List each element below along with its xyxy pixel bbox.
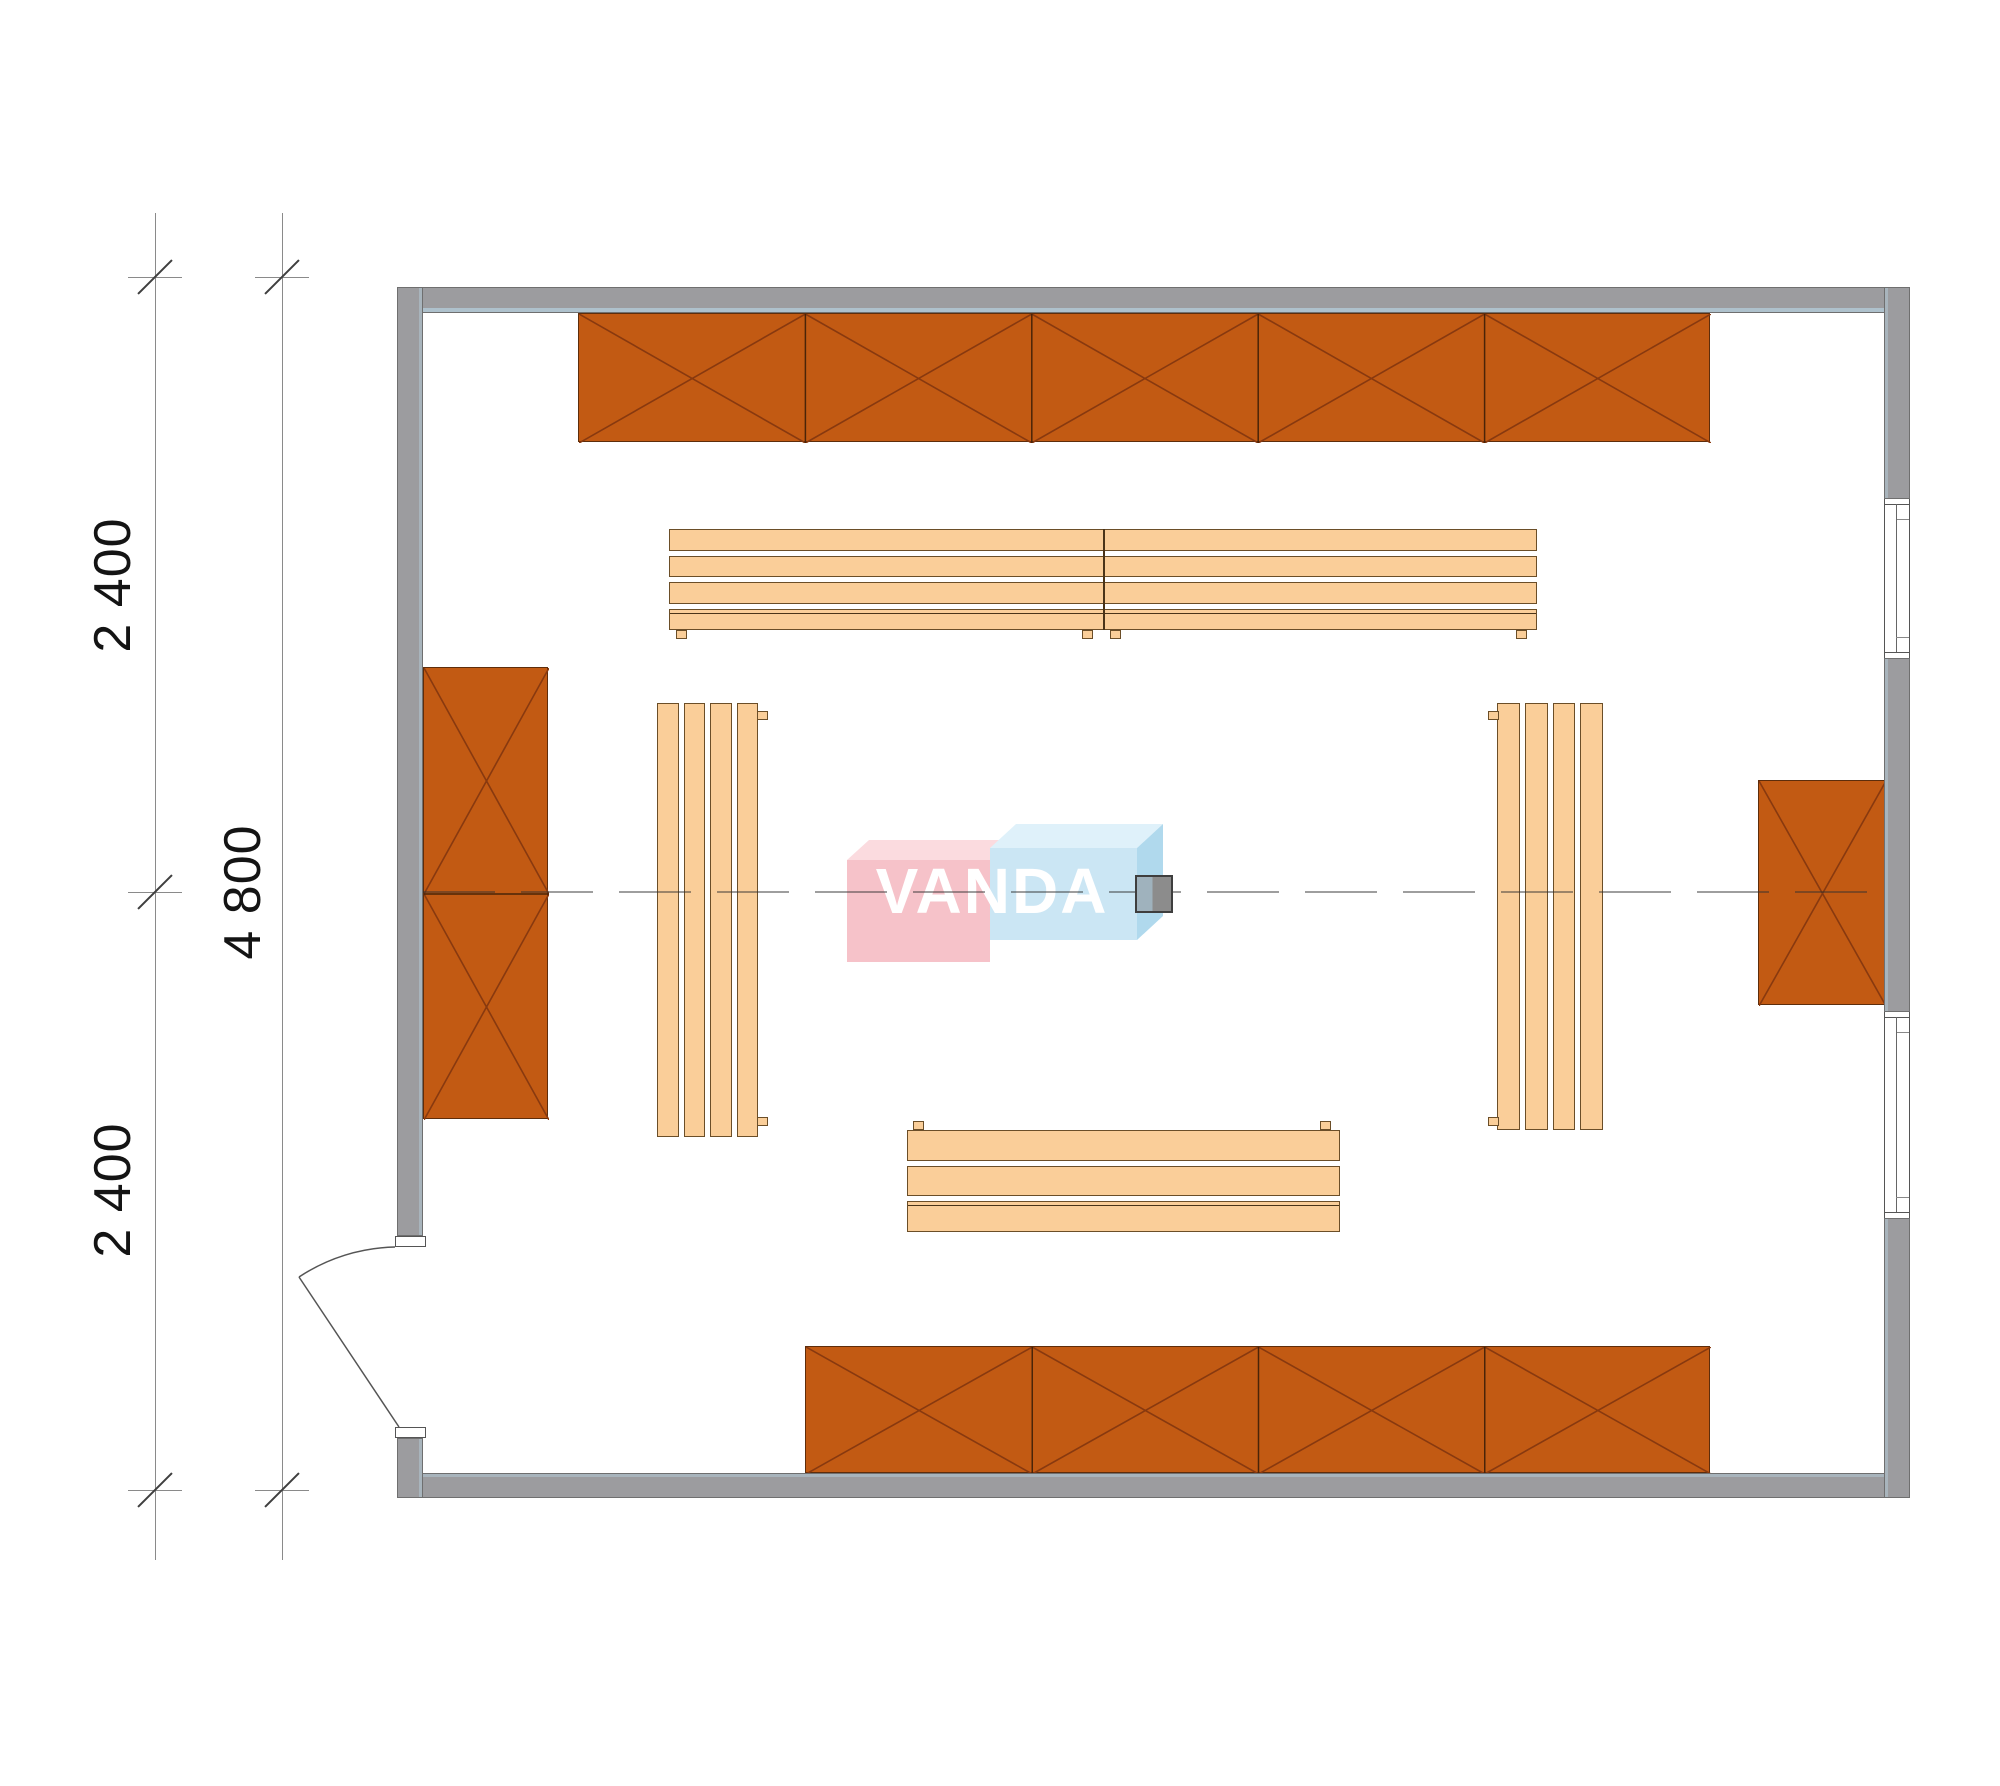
- centerline: [0, 0, 2000, 1786]
- stove: [1135, 875, 1173, 913]
- bench-right: [1497, 703, 1603, 1130]
- bench-foot: [1488, 1117, 1499, 1126]
- window-lower-right: [1884, 1012, 1910, 1218]
- bench-slat: [907, 1166, 1340, 1197]
- wall-top: [397, 287, 1908, 313]
- window-glazing-line: [1896, 504, 1897, 653]
- wall-bottom: [397, 1473, 1908, 1498]
- bench-foot: [757, 711, 768, 720]
- wall-left-lower: [397, 1438, 423, 1498]
- door-jamb-bottom: [395, 1427, 426, 1438]
- window-sash-line: [1896, 1197, 1909, 1198]
- floor-plan: 2 400 4 800 2 400 VANDA: [0, 0, 2000, 1786]
- bench-unit-divider: [1103, 529, 1105, 630]
- window-sash-line: [1896, 637, 1909, 638]
- bench-bottom: [907, 1130, 1340, 1232]
- window-sash-line: [1896, 1032, 1909, 1033]
- wall-right-upper: [1884, 287, 1910, 499]
- bench-foot: [913, 1121, 924, 1130]
- window-frame-cap: [1885, 1012, 1909, 1018]
- bench-foot: [676, 630, 687, 639]
- bench-top: [669, 529, 1537, 630]
- bench-left: [657, 703, 758, 1137]
- bench-slat: [684, 703, 706, 1137]
- bench-foot: [1516, 630, 1527, 639]
- dimension-line-inner: [282, 213, 283, 1560]
- bench-slat: [657, 703, 679, 1137]
- logo-pink-front-face: [847, 860, 990, 962]
- dimension-label-middle: 4 800: [213, 824, 273, 959]
- wall-right-middle: [1884, 658, 1910, 1012]
- bench-slat: [737, 703, 759, 1137]
- bench-foot: [1488, 711, 1499, 720]
- window-frame-cap: [1885, 1212, 1909, 1218]
- bench-foot: [1082, 630, 1093, 639]
- shelf-top-wall: [578, 313, 1710, 442]
- door-jamb-top: [395, 1236, 426, 1247]
- window-glazing-line: [1896, 1017, 1897, 1213]
- shelf-right-wall: [1758, 780, 1885, 1005]
- bench-slat: [1525, 703, 1548, 1130]
- bench-foot: [1320, 1121, 1331, 1130]
- vanda-watermark: VANDA: [0, 0, 2000, 1786]
- wall-left-upper: [397, 287, 423, 1236]
- shelf-bottom-wall: [805, 1346, 1710, 1473]
- logo-pink-top-face: [847, 840, 1012, 860]
- bench-slat: [1580, 703, 1603, 1130]
- window-frame-cap: [1885, 652, 1909, 658]
- bench-slat: [907, 1130, 1340, 1161]
- window-sash-line: [1896, 519, 1909, 520]
- logo-blue-top-face: [990, 824, 1163, 848]
- bench-slat: [1497, 703, 1520, 1130]
- window-upper-right: [1884, 499, 1910, 658]
- wall-right-lower: [1884, 1218, 1910, 1498]
- bench-foot: [757, 1117, 768, 1126]
- bench-slat: [907, 1201, 1340, 1232]
- watermark-text: VANDA: [876, 855, 1109, 927]
- window-frame-cap: [1885, 499, 1909, 505]
- dimension-label-top: 2 400: [83, 517, 143, 652]
- dimension-line-outer: [155, 213, 156, 1560]
- logo-blue-front-face: [990, 848, 1137, 940]
- bench-slat: [1553, 703, 1576, 1130]
- bench-foot: [1110, 630, 1121, 639]
- shelf-left-wall: [423, 667, 548, 1119]
- door-swing: [0, 0, 2000, 1786]
- dimension-label-bottom: 2 400: [83, 1122, 143, 1257]
- bench-slat: [710, 703, 732, 1137]
